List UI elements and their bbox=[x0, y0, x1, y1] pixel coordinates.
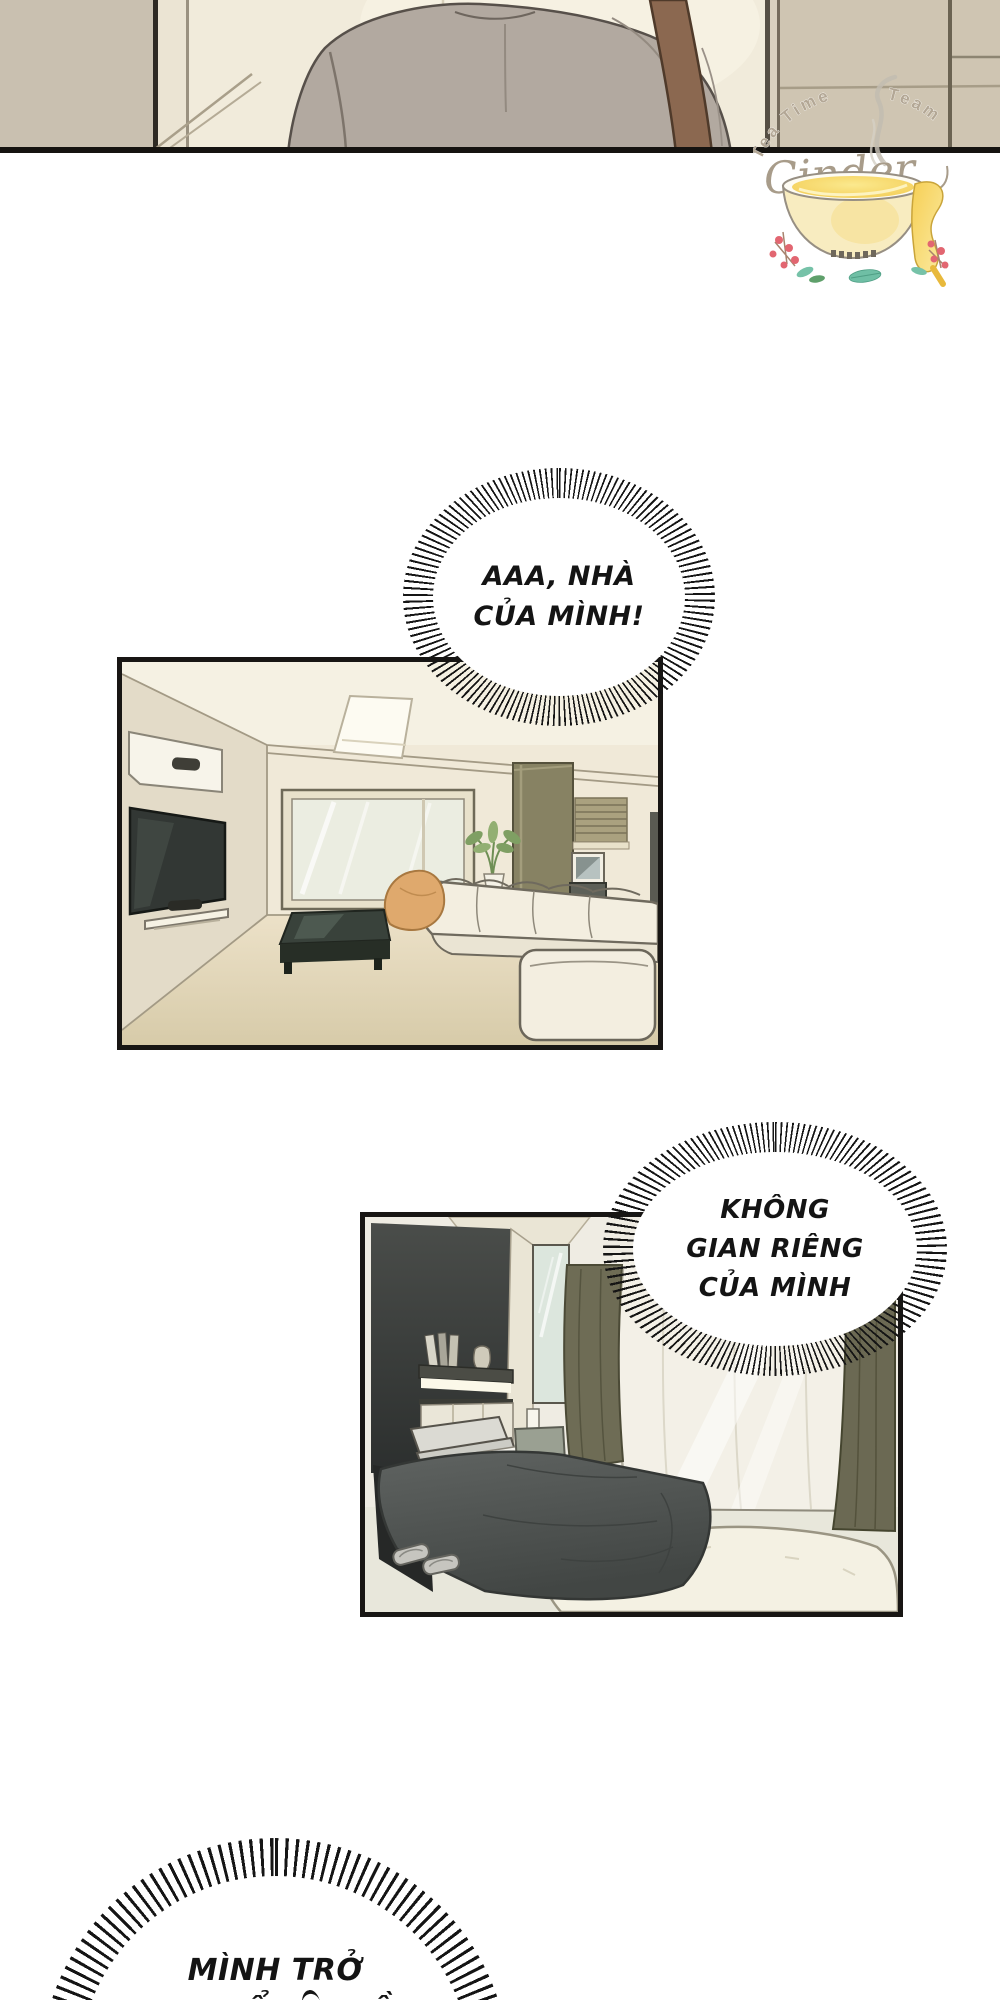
bubble-3-line-2: LẠI TUỔI 37 RỒI! bbox=[130, 1993, 420, 2000]
bubble-1-line-2: CỦA MÌNH! bbox=[474, 597, 645, 637]
ac-vent bbox=[172, 757, 201, 771]
window-blinds bbox=[573, 798, 629, 849]
door-jamb bbox=[158, 0, 186, 153]
bubble-2-line-1: KHÔNG bbox=[720, 1191, 830, 1230]
right-edge-furniture bbox=[650, 812, 658, 903]
bubble-1-line-1: AAA, NHÀ bbox=[483, 557, 636, 597]
bubble-3-line-1: MÌNH TRỞ bbox=[188, 1950, 363, 1993]
bubble-2-line-2: GIAN RIÊNG bbox=[686, 1230, 864, 1269]
candle bbox=[527, 1409, 539, 1429]
speech-bubble-2-text: KHÔNG GIAN RIÊNG CỦA MÌNH bbox=[633, 1152, 917, 1346]
speech-bubble-2: KHÔNG GIAN RIÊNG CỦA MÌNH bbox=[603, 1122, 947, 1376]
speech-bubble-1: AAA, NHÀ CỦA MÌNH! bbox=[403, 468, 715, 726]
mint-leaf bbox=[848, 268, 881, 284]
speech-bubble-3-text: MÌNH TRỞ LẠI TUỔI 37 RỒI! bbox=[78, 1876, 472, 2000]
logo-arc-text-right: Team bbox=[886, 84, 945, 126]
teacup-shading bbox=[831, 196, 899, 244]
slipper-heel bbox=[933, 268, 943, 284]
door-jamb-line bbox=[186, 0, 189, 153]
bubble-2-line-3: CỦA MÌNH bbox=[699, 1269, 851, 1308]
speech-bubble-3: MÌNH TRỞ LẠI TUỔI 37 RỒI! bbox=[40, 1838, 510, 2000]
vase bbox=[474, 1346, 491, 1369]
team-logo: Tea Time Team Cinder bbox=[753, 72, 1000, 300]
teacup-logo-illustration: Tea Time Team Cinder bbox=[753, 72, 1000, 300]
speech-bubble-1-text: AAA, NHÀ CỦA MÌNH! bbox=[433, 498, 685, 696]
comic-page: Tea Time Team Cinder bbox=[0, 0, 1000, 2000]
books bbox=[425, 1333, 459, 1368]
door-frame-line bbox=[153, 0, 158, 153]
side-monitor bbox=[572, 853, 604, 883]
back-seam bbox=[505, 24, 506, 112]
left-wall bbox=[0, 0, 153, 153]
